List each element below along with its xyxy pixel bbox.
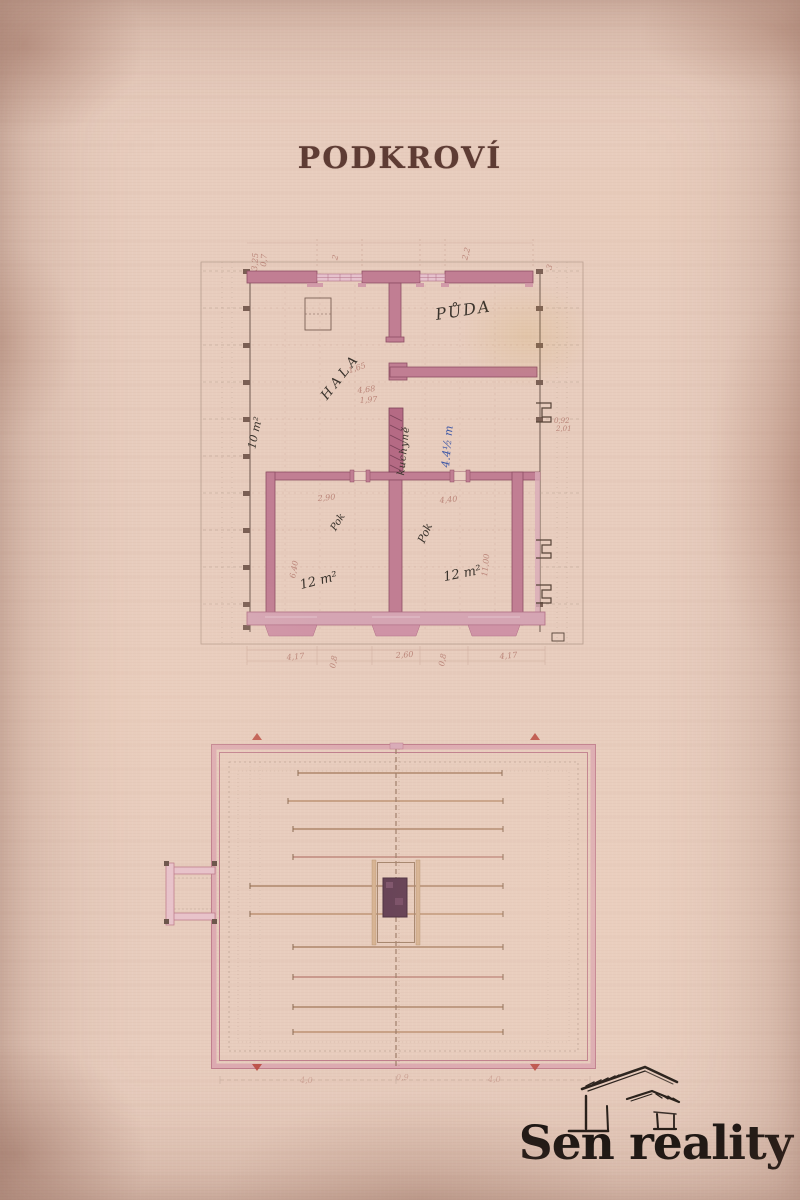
- dimension-label: 4,0: [488, 1075, 501, 1084]
- dimension-label: 4,0: [300, 1076, 313, 1085]
- dimension-label: 2,01: [556, 425, 572, 433]
- dimension-label: 1,97: [359, 395, 377, 405]
- roof-framing-plan-drawing: [150, 728, 620, 1098]
- brand-logo-text: Sen reality: [498, 1116, 792, 1178]
- dimension-label: 0,7: [259, 254, 269, 267]
- attic-floor-plan-drawing: [170, 225, 600, 695]
- dimension-label: 4,17: [286, 651, 305, 662]
- dimension-label: 4,40: [439, 494, 458, 505]
- page-title: PODKROVÍ: [0, 141, 800, 176]
- dimension-label: 0,92: [554, 417, 570, 425]
- dimension-label: 0,9: [396, 1073, 409, 1082]
- dimension-label: 4,68: [357, 384, 376, 395]
- dimension-label: 2,60: [395, 650, 413, 660]
- scanned-floor-plan-page: PODKROVÍ: [0, 0, 800, 1200]
- dimension-label: 4,17: [499, 650, 518, 661]
- dimension-label: 2,90: [317, 492, 336, 503]
